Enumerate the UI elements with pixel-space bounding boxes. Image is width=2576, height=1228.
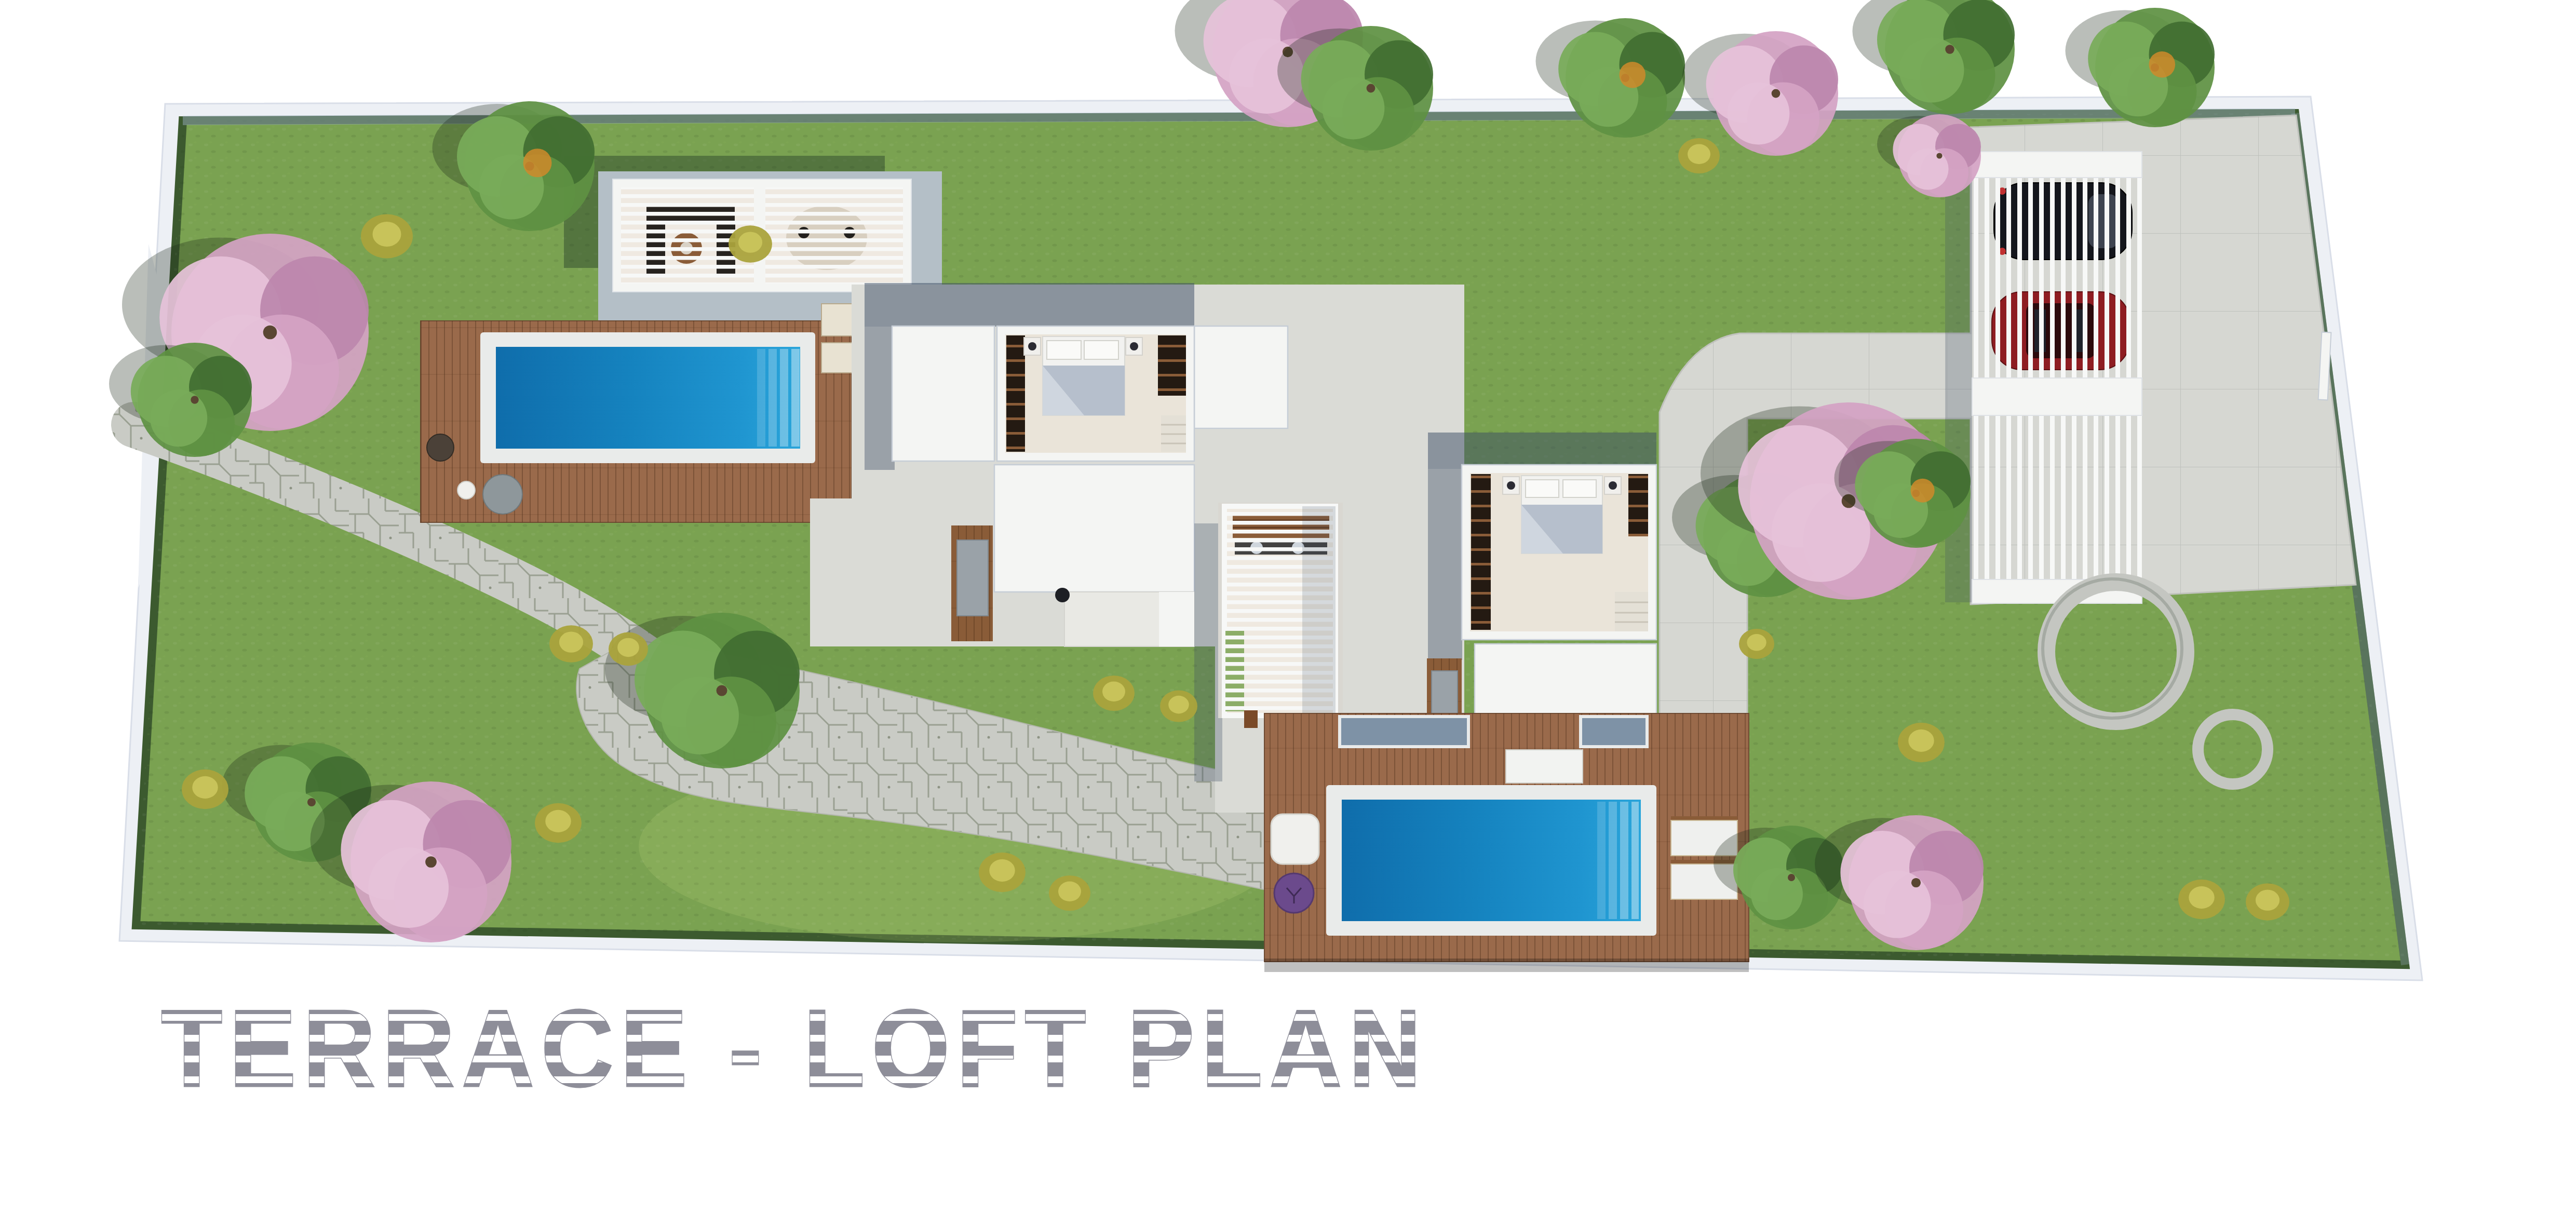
stairs-1 (1161, 415, 1186, 452)
deck-2-shadow (1264, 959, 1749, 972)
carport-beam-mid (1972, 378, 2142, 415)
site-plan-rendering: TERRACE - LOFT PLAN (0, 0, 2576, 1228)
skylight-well (1581, 717, 1647, 747)
villa-1-roof-south (994, 465, 1194, 592)
pool-2-water (1342, 800, 1641, 921)
pool-1 (480, 332, 815, 463)
lamp (1507, 481, 1515, 490)
bed-1 (1043, 336, 1125, 415)
villa-1-roof-west (892, 326, 994, 461)
tree-shrub (979, 853, 1026, 893)
villa-1-bench (957, 540, 988, 616)
wardrobe-1-right (1158, 335, 1186, 396)
tree-shrub (535, 803, 582, 843)
pouf-purple (1274, 873, 1314, 913)
tree-shrub (2178, 880, 2225, 920)
lamp (1609, 481, 1617, 490)
pouf-gray (483, 475, 522, 514)
tree-shrub (182, 770, 228, 809)
tree-shrub (729, 225, 772, 262)
tree-shrub (609, 632, 648, 666)
lamp (1130, 342, 1138, 350)
carport-shadow (1945, 167, 1972, 602)
villa-2-roof-shadow (1428, 433, 1656, 469)
wardrobe-2-right (1628, 474, 1648, 536)
page-title: TERRACE - LOFT PLAN (161, 987, 1428, 1110)
bed-2 (1521, 476, 1602, 554)
villa-1-bedroom (997, 326, 1194, 461)
tree-green (1853, 0, 2015, 114)
pouf-brown (427, 434, 454, 461)
tree-shrub (1898, 723, 1945, 763)
villa-2-bedroom (1462, 465, 1656, 640)
tree-shrub (1160, 690, 1197, 722)
carport (1945, 152, 2142, 603)
tree-shrub (1739, 629, 1774, 659)
tree-shrub (549, 625, 593, 662)
pool-1-water (496, 347, 800, 449)
carport-louvers (1972, 152, 2142, 602)
tree-shrub (1093, 676, 1135, 711)
wardrobe-2-left (1471, 474, 1491, 630)
tree-shrub (361, 214, 413, 259)
villa-1-roof-east-wing (1194, 326, 1288, 428)
villa-2-side-shadow (1428, 469, 1462, 660)
skylight-well (1340, 717, 1468, 747)
tree-shrub (1678, 138, 1720, 173)
pool-2 (1326, 785, 1656, 936)
pouf-white (457, 481, 475, 499)
villa-1-stool (1055, 588, 1070, 602)
wardrobe-1-left (1006, 335, 1025, 452)
tree-shrub (2246, 883, 2289, 920)
carport-beam-top (1972, 152, 2142, 178)
deck-2-daybed (1506, 750, 1583, 783)
stairs-2 (1615, 592, 1648, 631)
planter-box (1244, 710, 1258, 728)
tree-shrub (1049, 875, 1090, 911)
pergola-dining-shadow (1194, 523, 1222, 781)
villa-1-side-shadow (865, 327, 895, 470)
villa-1-paving-west (810, 498, 852, 646)
villa-1-terrace-canopy (1159, 592, 1194, 646)
pouf-white-2 (1271, 814, 1319, 864)
villa-1-stair-court (951, 525, 993, 641)
villa-1-roof-shadow (865, 283, 1194, 327)
lamp (1028, 342, 1036, 350)
